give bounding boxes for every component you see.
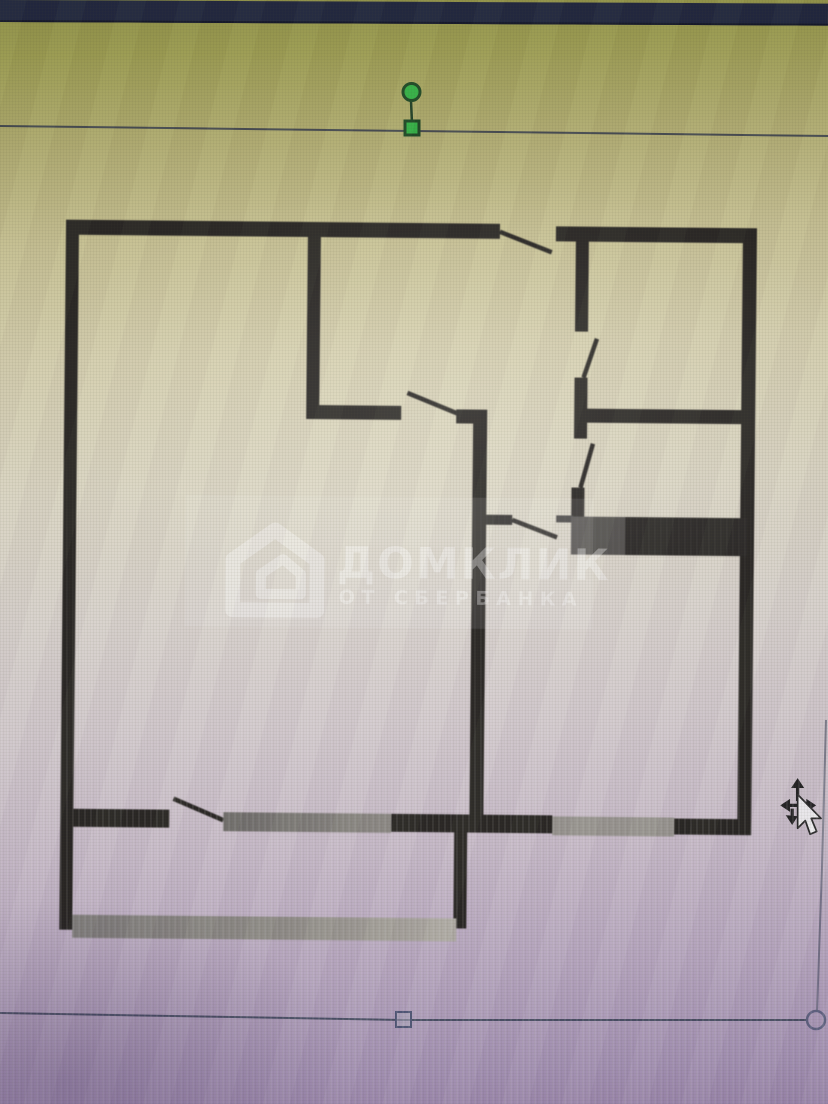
wall-hall-bottom-a <box>306 405 401 420</box>
closet-block-dark <box>625 517 747 556</box>
wall-balcony-right <box>453 830 467 928</box>
bathroom-door-swing-2 <box>581 444 593 488</box>
wall-bottom-a <box>71 809 169 828</box>
wall-top-left <box>66 220 500 239</box>
wall-bottom-b <box>391 814 552 834</box>
bathroom-door-swing-1 <box>584 339 597 378</box>
photographed-monitor-screen: ДОМКЛИК ОТ СБЕРБАНКА <box>0 0 828 1104</box>
wall-rooms-divider <box>587 409 748 425</box>
entrance-door-swing <box>500 232 552 252</box>
wall-bath-mid <box>574 378 588 439</box>
window-top-bar <box>0 0 828 26</box>
domclick-house-icon <box>225 522 326 619</box>
domclick-watermark: ДОМКЛИК ОТ СБЕРБАНКА <box>184 495 593 630</box>
wall-bottom-c <box>674 819 751 836</box>
bedroom-window <box>552 816 674 836</box>
wall-hall-left <box>306 237 321 417</box>
watermark-subtitle: ОТ СБЕРБАНКА <box>339 589 584 610</box>
balcony-door-swing <box>173 799 223 820</box>
living-room-window <box>223 812 391 833</box>
watermark-title: ДОМКЛИК <box>337 543 611 588</box>
wall-bath-upper <box>575 240 589 332</box>
hall-door-swing <box>407 393 457 413</box>
balcony-window-band <box>72 915 456 942</box>
